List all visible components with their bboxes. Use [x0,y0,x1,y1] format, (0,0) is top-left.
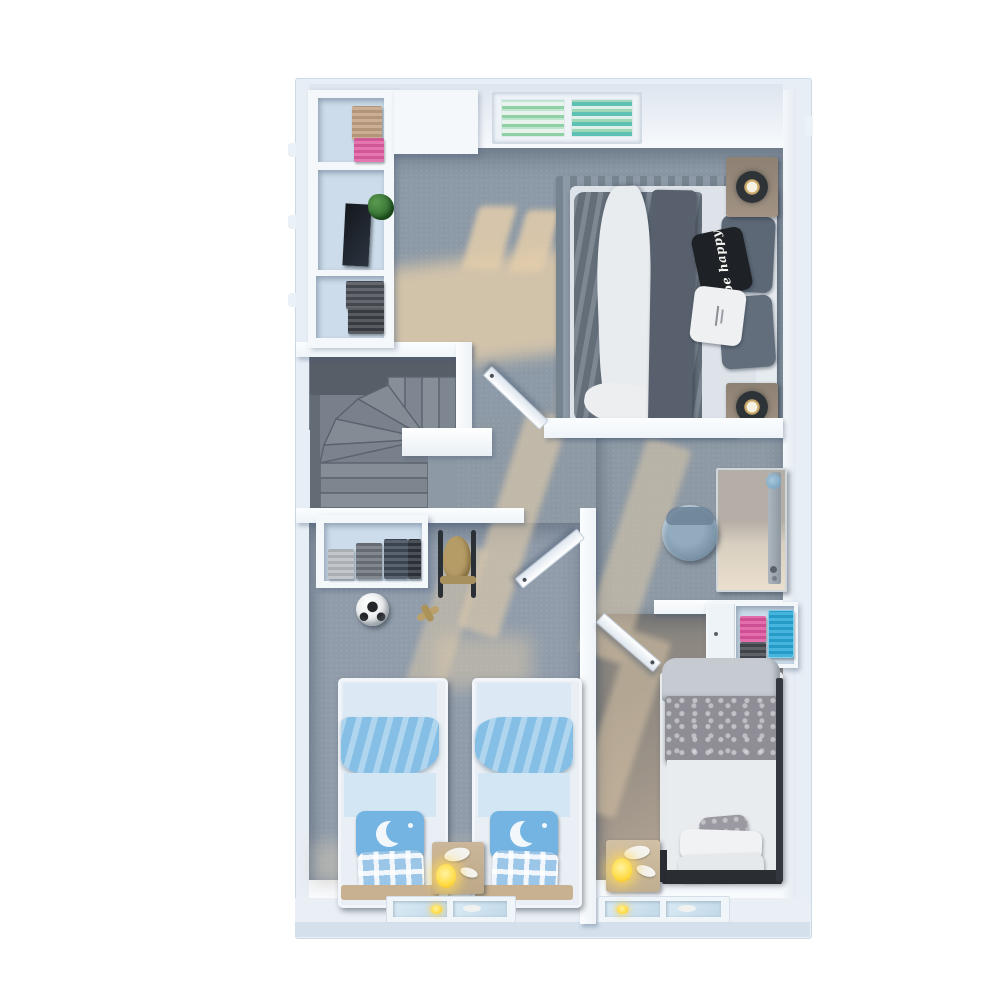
wardrobe-cubby [318,170,384,270]
kids-duvet [341,717,439,775]
pillow-print [720,309,724,323]
toy-plane [412,600,442,626]
master-wardrobe-top-arm [394,90,478,154]
left-wall-sill [288,215,296,229]
folded-clothes-cyan [768,610,794,658]
pillow-text: be happy [708,229,735,295]
soccer-ball [356,593,389,626]
star-dot [542,823,547,828]
pillow-print [715,306,719,326]
window-blinds-left [501,99,565,137]
window-pane [605,901,660,917]
nightstand [726,157,778,217]
shelf-cabinet-door [708,604,735,666]
horse-seat-bar [440,576,476,584]
bed-frame-dark-side [660,850,667,882]
kids-nightstand [432,842,484,894]
bed-frame-dark [662,870,782,884]
folded-clothes-tan [352,106,382,140]
decor-plate [443,845,471,863]
window-highlight [463,905,481,912]
folded-shirt-navy [384,539,408,579]
folded-clothes-dark [408,539,421,579]
tv-panel [342,203,371,266]
table-lamp [736,171,768,203]
floorplan-stage: be happy [0,0,1000,1000]
left-wall-sill [288,293,296,307]
kids-duvet [475,717,573,775]
stair-railing [402,428,492,456]
folded-clothes-pink [354,138,384,162]
bedroom2-bed [660,658,783,890]
wardrobe-cubby [318,98,384,162]
wardrobe-cubby [316,276,384,338]
kids-wardrobe-shelf [324,523,422,581]
office-chair [662,505,718,561]
window-pane [666,901,721,917]
moon-crescent-cut [520,819,544,843]
twin-bed [472,678,582,908]
rocker-rail [471,530,476,598]
lamp-reflection [431,905,442,914]
bed-runner [648,190,696,425]
potted-plant [368,194,394,220]
study-desk [716,468,787,592]
folded-clothes-gray [346,281,384,309]
folded-clothes-light [328,549,354,579]
wall-stair-right [456,342,472,437]
left-wall-sill [288,143,296,157]
window-kids-bottom [386,896,516,923]
folded-clothes-dark [348,308,384,334]
folded-clothes-pink [740,616,766,642]
window-highlight [678,905,696,912]
desk-knob [772,576,777,581]
lamp-reflection [617,905,628,914]
damask-blanket [665,696,778,762]
decor-plate [459,865,479,879]
window-bedroom2-bottom [598,896,730,923]
window-master-top [492,92,642,144]
window-pane [393,901,447,917]
bed-frame-dark-side [776,678,783,882]
desk-lamp-knob [766,474,781,489]
decor-plate [635,863,657,879]
bedside-lamp-lit [436,864,456,888]
chair-backrest [666,507,714,525]
moon-crescent-cut [386,819,410,843]
bedside-lamp-lit [612,858,632,882]
bedroom2-nightstand [606,840,660,892]
decor-plate [623,844,651,861]
folded-clothes-gray [356,543,382,579]
desk-knob [770,566,777,573]
kids-wardrobe [316,515,428,588]
wall-master-south [544,418,783,438]
window-blinds-right [571,99,633,137]
bottom-wall-edge [295,922,810,937]
rocking-horse [438,528,480,600]
pillow-white [689,285,747,347]
star-dot [408,823,413,828]
right-wall-sill [805,116,813,136]
shelf-open-bay [736,606,794,664]
wall-kids-bedroom2-divider [580,508,596,924]
cabinet-handle [714,632,718,636]
window-pane [453,901,507,917]
